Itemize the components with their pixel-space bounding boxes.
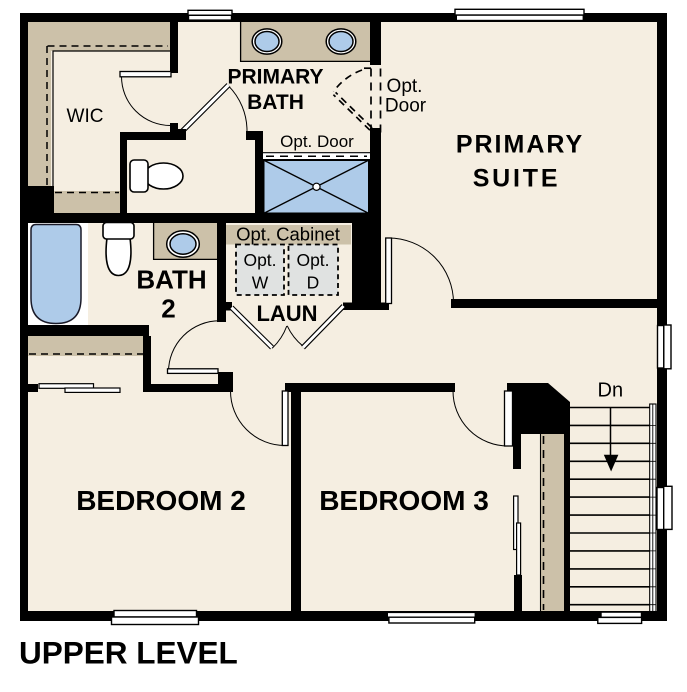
svg-text:Opt. Cabinet: Opt. Cabinet [236, 224, 340, 245]
svg-text:W: W [252, 273, 269, 293]
svg-text:Door: Door [385, 96, 427, 117]
svg-text:Dn: Dn [598, 380, 624, 402]
svg-text:PRIMARY: PRIMARY [456, 131, 584, 159]
svg-text:Opt. Door: Opt. Door [280, 132, 354, 151]
svg-text:PRIMARY: PRIMARY [227, 66, 323, 89]
svg-text:Opt.: Opt. [296, 250, 329, 270]
svg-text:BEDROOM 3: BEDROOM 3 [319, 485, 489, 516]
svg-text:UPPER LEVEL: UPPER LEVEL [19, 635, 238, 671]
svg-text:SUITE: SUITE [473, 165, 561, 193]
svg-text:D: D [307, 273, 320, 293]
svg-text:BEDROOM 2: BEDROOM 2 [76, 485, 246, 516]
svg-text:2: 2 [161, 294, 175, 324]
svg-text:BATH: BATH [247, 91, 304, 114]
svg-text:Opt.: Opt. [243, 250, 276, 270]
svg-text:BATH: BATH [136, 264, 206, 294]
svg-text:WIC: WIC [67, 106, 104, 127]
svg-text:Opt.: Opt. [387, 76, 423, 97]
svg-text:LAUN: LAUN [256, 301, 317, 326]
